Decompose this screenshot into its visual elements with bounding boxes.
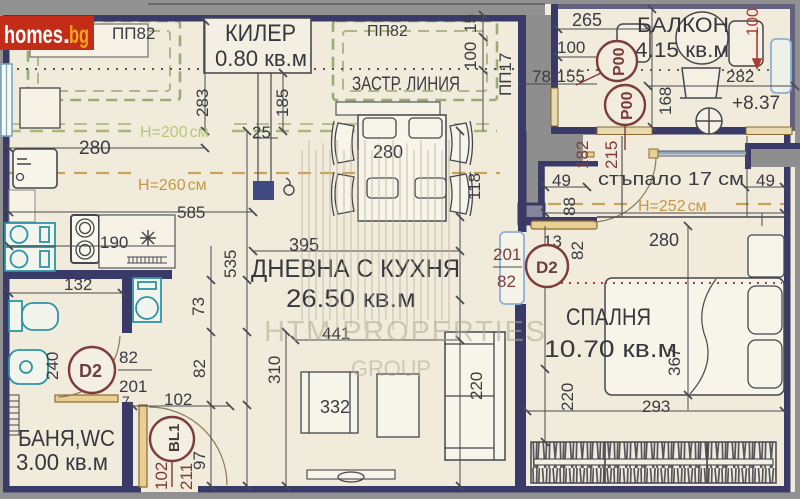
svg-text:Н=260см: Н=260см: [138, 177, 207, 194]
svg-text:82: 82: [568, 241, 587, 260]
svg-text:280: 280: [79, 138, 111, 159]
svg-text:585: 585: [177, 203, 205, 222]
svg-text:3.00 кв.м: 3.00 кв.м: [16, 449, 108, 475]
svg-text:D2: D2: [536, 258, 558, 277]
svg-text:стъпало 17 см: стъпало 17 см: [598, 169, 744, 189]
svg-text:201: 201: [493, 245, 521, 264]
svg-text:homes: homes: [4, 21, 63, 49]
svg-text:132: 132: [64, 275, 92, 294]
svg-text:Н=252см: Н=252см: [638, 198, 707, 215]
svg-text:220: 220: [558, 383, 577, 411]
svg-text:4.15 кв.м: 4.15 кв.м: [635, 39, 729, 62]
svg-text:535: 535: [221, 250, 240, 278]
svg-text:HTM PROPERTIES: HTM PROPERTIES: [264, 316, 550, 348]
svg-text:Н=200см: Н=200см: [140, 124, 209, 141]
svg-text:ПП17: ПП17: [496, 53, 515, 96]
svg-text:280: 280: [649, 230, 679, 250]
svg-text:GROUP: GROUP: [351, 356, 434, 381]
svg-text:88: 88: [560, 197, 579, 216]
svg-text:100: 100: [557, 38, 585, 57]
svg-text:73: 73: [189, 297, 208, 316]
svg-text:215: 215: [602, 141, 621, 169]
svg-text:293: 293: [642, 397, 670, 416]
svg-text:220: 220: [467, 372, 486, 400]
svg-text:7: 7: [122, 393, 130, 409]
svg-text:118: 118: [465, 173, 484, 200]
svg-text:211: 211: [177, 463, 196, 490]
svg-text:D2: D2: [79, 361, 102, 381]
svg-text:78-155: 78-155: [532, 67, 585, 86]
svg-text:BL1: BL1: [166, 424, 183, 452]
svg-text:БАНЯ,WC: БАНЯ,WC: [18, 425, 115, 451]
svg-text:332: 332: [320, 397, 350, 417]
svg-text:265: 265: [572, 10, 602, 30]
svg-text:bg: bg: [69, 21, 89, 49]
svg-text:185: 185: [273, 89, 292, 117]
svg-text:49: 49: [552, 171, 571, 190]
svg-text:100: 100: [743, 8, 762, 36]
svg-text:БАЛКОН: БАЛКОН: [637, 14, 729, 37]
svg-text:ПП82: ПП82: [112, 24, 155, 43]
svg-text:102: 102: [152, 462, 171, 490]
svg-text:282: 282: [726, 67, 754, 86]
svg-text:310: 310: [265, 356, 284, 384]
svg-text:Р00: Р00: [619, 91, 636, 120]
svg-text:0.80 кв.м: 0.80 кв.м: [215, 46, 307, 71]
svg-text:Р00: Р00: [611, 47, 628, 76]
svg-text:168: 168: [656, 87, 675, 115]
svg-text:ЗАСТР. ЛИНИЯ: ЗАСТР. ЛИНИЯ: [352, 74, 460, 95]
svg-text:182: 182: [573, 141, 592, 169]
svg-text:82: 82: [190, 359, 209, 378]
svg-text:10.70 кв.м: 10.70 кв.м: [544, 336, 677, 363]
svg-text:395: 395: [289, 235, 319, 255]
svg-text:280: 280: [373, 142, 403, 162]
svg-text:15: 15: [461, 14, 480, 33]
svg-text:82: 82: [119, 348, 138, 367]
svg-text:+8.37: +8.37: [732, 93, 780, 114]
svg-text:102: 102: [164, 390, 192, 409]
svg-text:49: 49: [756, 171, 775, 190]
svg-text:СПАЛНЯ: СПАЛНЯ: [566, 304, 651, 331]
svg-text:82: 82: [497, 272, 516, 291]
svg-text:КИЛЕР: КИЛЕР: [225, 20, 296, 47]
svg-text:190: 190: [100, 233, 128, 252]
svg-text:283: 283: [193, 89, 212, 117]
svg-text:240: 240: [43, 352, 62, 380]
svg-text:ПП82: ПП82: [367, 23, 408, 40]
svg-text:25: 25: [252, 123, 271, 142]
svg-text:100: 100: [461, 42, 480, 70]
